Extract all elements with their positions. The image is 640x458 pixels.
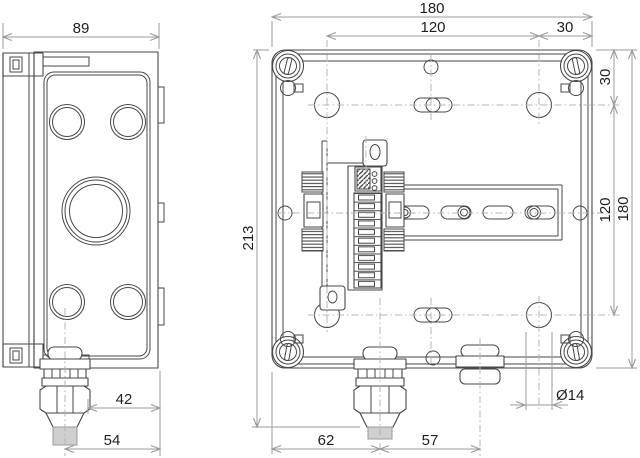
corner-screw-top-right (561, 51, 592, 82)
front-view (272, 50, 592, 439)
knockout-domes (50, 105, 146, 320)
hinge-tab-top (158, 87, 164, 123)
dim-label-dia14: Ø14 (556, 387, 584, 404)
hinge-tab-bottom (158, 288, 164, 325)
enclosure-drawing: 89 180 120 30 30 120 180 (0, 0, 640, 458)
dim-bottom-gland-pitch: 57 (380, 432, 480, 449)
dim-right-height: 180 (615, 50, 632, 368)
dim-label-54: 54 (104, 432, 121, 449)
latch-top (3, 53, 89, 76)
side-view (3, 52, 164, 445)
clamp-right (384, 172, 404, 251)
dim-top-hole-pitch: 120 (327, 19, 539, 36)
corner-screw-top-left (273, 51, 304, 82)
terminal-ladder (354, 193, 381, 288)
dim-side-gland-center: 54 (65, 432, 160, 449)
dimensions: 89 180 120 30 30 120 180 (3, 0, 637, 456)
small-hole-bottom (426, 351, 440, 365)
lug-top-right (561, 81, 584, 96)
side-lid-outline (34, 52, 158, 368)
dim-label-120-top: 120 (420, 19, 445, 36)
dim-label-30-top: 30 (557, 19, 574, 36)
dim-side-gland-offset: 42 (88, 371, 160, 456)
dim-side-depth: 89 (3, 20, 159, 49)
corner-screw-bottom-left (273, 337, 304, 368)
dim-overall-height: 213 (240, 50, 360, 427)
dim-label-30-right: 30 (597, 69, 614, 86)
centerlines (65, 40, 622, 456)
dim-label-213: 213 (240, 225, 257, 250)
technical-drawing-page: 89 180 120 30 30 120 180 (0, 0, 640, 458)
dim-label-57: 57 (422, 432, 439, 449)
clamp-left (302, 172, 323, 251)
hinge-tab-middle (158, 203, 164, 222)
dim-label-62: 62 (318, 432, 335, 449)
dim-right-hole-pitch: 120 (597, 105, 614, 315)
dim-label-120-right: 120 (597, 197, 614, 222)
corner-screw-bottom-right (561, 337, 592, 368)
dim-label-180-top: 180 (419, 0, 444, 17)
dim-label-89: 89 (73, 20, 90, 37)
dim-top-right-margin: 30 (539, 19, 592, 36)
dim-label-42: 42 (116, 391, 133, 408)
bracket-tab-top (363, 140, 387, 166)
bracket-tab-bottom (320, 286, 345, 310)
dim-label-180-right: 180 (615, 196, 632, 221)
lug-top-left (281, 81, 304, 96)
large-knockout-dome (62, 177, 130, 245)
terminal-device (302, 166, 404, 290)
device-connector (355, 167, 381, 191)
side-lid-face-outer (44, 72, 150, 359)
